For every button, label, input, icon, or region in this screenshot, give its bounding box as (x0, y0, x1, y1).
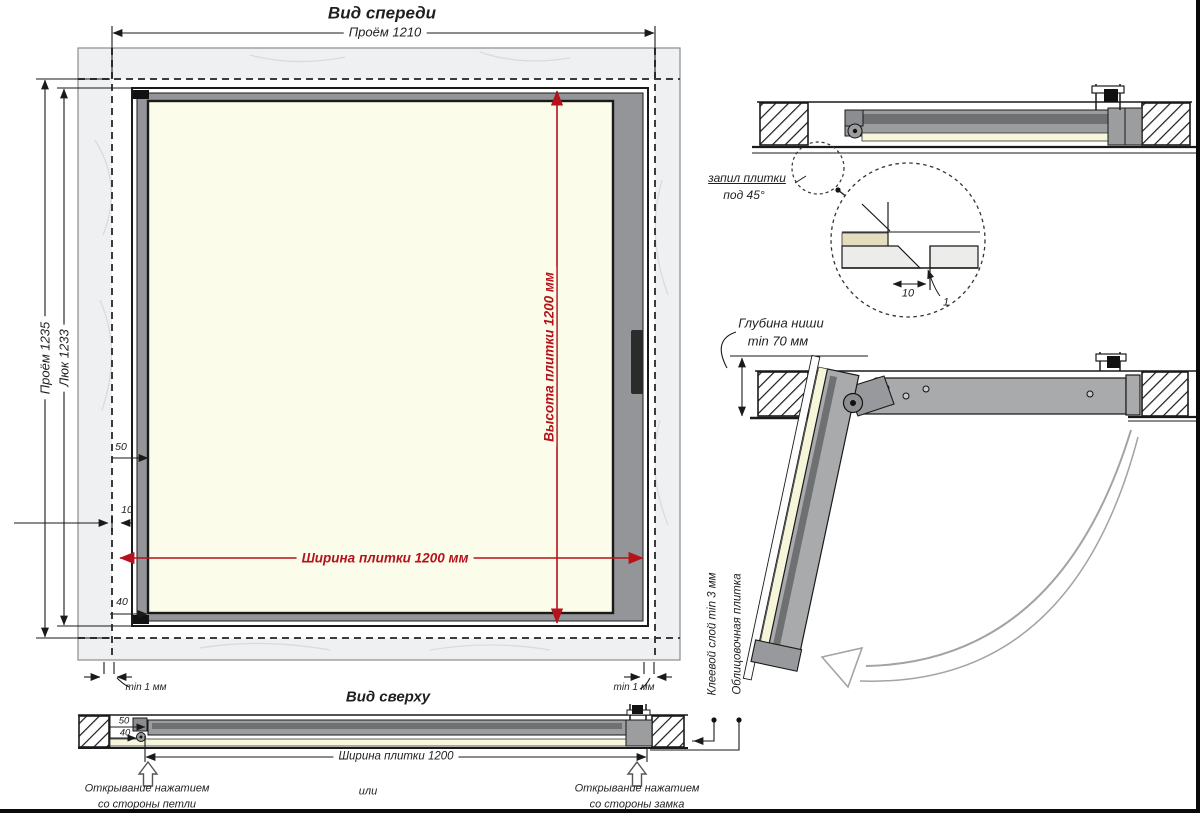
top-view-dim-40-label: 40 (120, 728, 131, 738)
top-view-lock-block (626, 720, 652, 746)
latch-handle (631, 330, 643, 394)
detail-callout-circle (792, 142, 844, 194)
open-view-latch-knob (1107, 356, 1120, 368)
open-view-drawing (721, 332, 1197, 691)
open-frame-end (1126, 375, 1140, 415)
glue-layer-label: Клеевой слой min 3 мм (707, 572, 719, 695)
opening-width-dim-label: Проём 1210 (344, 26, 427, 39)
top-view-frame-stripe (152, 723, 622, 729)
niche-depth-label-line1: Глубина ниши (738, 317, 823, 330)
open-hinge-label-line2: со стороны петли (98, 800, 196, 811)
detail-dim-10-label: 10 (902, 289, 914, 300)
facing-tile-label: Облицовочная плитка (732, 573, 744, 694)
detail-dim-1-label: 1 (943, 298, 949, 309)
hatch-height-dim-label: Люк 1233 (58, 324, 71, 391)
technical-drawing-canvas: Вид спереди Проём 1210 Проём 1235 Люк 12… (0, 0, 1200, 813)
top-view-hinge-block (133, 718, 147, 731)
top-view-width-dim-label: Ширина плитки 1200 (333, 751, 458, 763)
niche-depth-leader (721, 332, 736, 368)
open-lock-label-line1: Открывание нажатием (575, 784, 700, 795)
min-gap-left-label: min 1 мм (126, 683, 167, 693)
hinge-mark-bottom (133, 615, 149, 624)
glue-layer-leader (692, 722, 714, 741)
tile-cut-label-line1: запил плитки (708, 172, 786, 184)
open-wall-right (1142, 372, 1188, 416)
top-view-wall-left (79, 716, 109, 747)
section-view-closed (752, 84, 1197, 317)
swing-arc-arrow (822, 430, 1138, 687)
opening-height-dim-label: Проём 1235 (39, 317, 52, 400)
open-hinge-label-line1: Открывание нажатием (85, 784, 210, 795)
top-view-latch-knob (632, 705, 643, 714)
dim-40-label: 40 (116, 597, 128, 608)
tile-cut-label-line2: под 45° (723, 189, 764, 201)
min-gap-right-label: min 1 мм (614, 683, 655, 693)
hinge-mark-top (133, 90, 149, 99)
section-latch-knob (1104, 89, 1118, 102)
top-view-drawing (78, 704, 742, 786)
top-view-dim-50-label: 50 (119, 716, 130, 726)
top-view-tile-strip (110, 739, 648, 746)
front-view-drawing (14, 26, 680, 689)
open-lock-label-line2: со стороны замка (590, 800, 685, 811)
drawing-linework (0, 0, 1200, 813)
niche-depth-label-line2: min 70 мм (748, 335, 808, 348)
dim-10-label: 10 (121, 505, 133, 516)
front-view-title: Вид спереди (328, 5, 436, 22)
section-wall-right (1142, 103, 1190, 145)
or-label: или (359, 787, 377, 798)
top-view-title: Вид сверху (346, 690, 430, 705)
section-tile-strip (862, 133, 1135, 141)
dim-50-label: 50 (115, 442, 127, 453)
top-view-wall-right (652, 716, 684, 747)
tile-width-dim-label: Ширина плитки 1200 мм (297, 551, 474, 565)
tile-height-dim-label: Высота плитки 1200 мм (542, 267, 556, 447)
section-wall-left (760, 103, 808, 145)
